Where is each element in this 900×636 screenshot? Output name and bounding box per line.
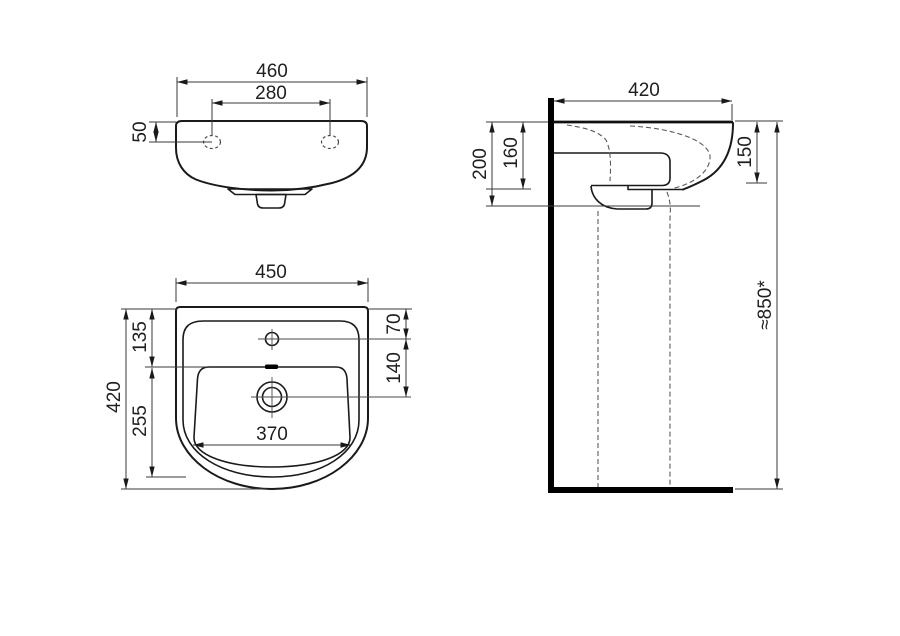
- dim-side-front-height: 150: [735, 121, 783, 183]
- plan-view: [176, 307, 411, 489]
- dim-label-plan-tap-from-back: 135: [130, 321, 151, 353]
- dim-side-overall-depth: 420: [554, 80, 732, 120]
- dim-label-side-mid-height: 160: [501, 137, 522, 169]
- dim-front-hole-offset: 50: [130, 121, 212, 142]
- dim-plan-overall-width: 450: [176, 262, 368, 302]
- dim-label-side-front-height: 150: [735, 136, 756, 168]
- floor-line: [548, 487, 733, 493]
- dim-label-plan-tap-to-drain: 140: [384, 352, 405, 384]
- plan-overflow-slot: [265, 365, 278, 370]
- side-view-dimensions: 420 200 160 150 ≈850*: [470, 80, 783, 489]
- dim-label-side-back-height: 200: [470, 148, 491, 180]
- dim-plan-bowl-front-extent: 255: [130, 368, 186, 477]
- dim-label-side-depth: 420: [628, 80, 660, 101]
- side-view: [548, 98, 733, 493]
- front-drain-outlet: [256, 195, 286, 209]
- dim-label-front-hole-spacing: 280: [255, 83, 287, 104]
- plan-rim-inner-edge: [183, 321, 359, 477]
- plan-view-dimensions: 450 420 135 255 370 70 140: [104, 262, 412, 489]
- front-basin-outline: [176, 121, 367, 191]
- dim-plan-tap-offset: 70: [368, 309, 412, 339]
- dim-side-mid-height: 160: [486, 122, 531, 189]
- dim-plan-overall-depth: 420: [104, 309, 267, 489]
- dim-plan-tap-to-drain: 140: [384, 339, 406, 397]
- dim-label-side-rim-height: ≈850*: [755, 280, 776, 330]
- dim-label-plan-depth: 420: [104, 381, 125, 413]
- front-view: [176, 121, 367, 208]
- dim-front-hole-spacing: 280: [212, 83, 330, 135]
- dim-label-plan-bowl-width: 370: [256, 424, 288, 445]
- dim-label-plan-bowl-front: 255: [130, 405, 151, 437]
- side-underside-profile: [554, 153, 670, 186]
- dim-label-front-width: 460: [256, 61, 288, 82]
- drawing-page: 460 280 50 450: [0, 0, 900, 636]
- front-view-dimensions: 460 280 50: [130, 61, 367, 143]
- pedestal-hidden-right: [667, 192, 670, 487]
- front-mount-hole-right: [322, 136, 339, 149]
- dim-label-plan-tap-offset: 70: [384, 313, 405, 334]
- dim-label-front-hole-offset: 50: [130, 121, 151, 142]
- dim-plan-tap-from-back: 135: [130, 309, 206, 367]
- wall-section: [548, 98, 554, 493]
- washbasin-technical-drawing: 460 280 50 450: [0, 0, 900, 636]
- dim-label-plan-width: 450: [255, 262, 287, 283]
- side-front-outer-curve: [683, 123, 733, 190]
- dim-plan-bowl-width: 370: [193, 424, 351, 445]
- dim-side-rim-height: ≈850*: [735, 122, 783, 489]
